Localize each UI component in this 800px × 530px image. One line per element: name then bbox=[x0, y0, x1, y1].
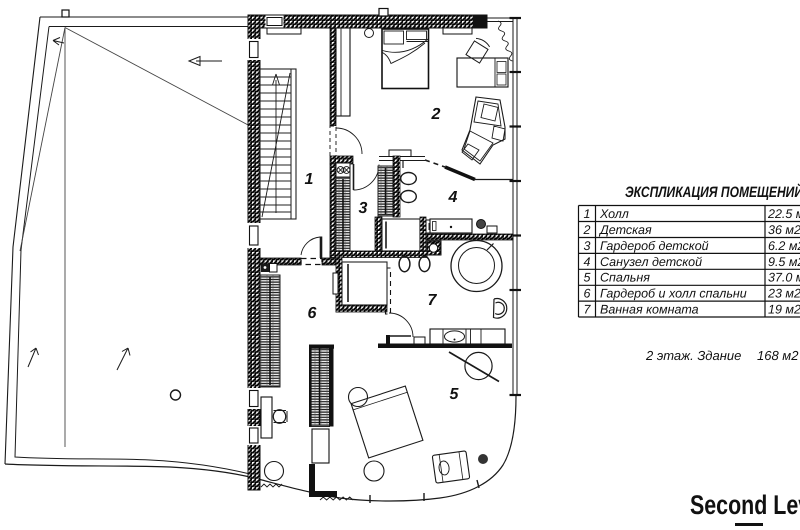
svg-text:ЭКСПЛИКАЦИЯ ПОМЕЩЕНИЙ: ЭКСПЛИКАЦИЯ ПОМЕЩЕНИЙ bbox=[625, 183, 800, 201]
svg-text:Санузел детской: Санузел детской bbox=[600, 255, 702, 269]
svg-text:5: 5 bbox=[450, 386, 460, 403]
svg-text:7: 7 bbox=[428, 292, 438, 309]
svg-text:Second Level: Second Level bbox=[690, 490, 800, 520]
svg-text:3: 3 bbox=[584, 239, 591, 253]
svg-text:5: 5 bbox=[584, 271, 591, 285]
svg-text:9.5 м2: 9.5 м2 bbox=[768, 255, 800, 269]
svg-text:Ванная комната: Ванная комната bbox=[600, 303, 699, 317]
svg-text:Гардероб и холл спальни: Гардероб и холл спальни bbox=[600, 287, 747, 301]
svg-text:Холл: Холл bbox=[599, 207, 629, 221]
svg-text:36 м2: 36 м2 bbox=[768, 223, 800, 237]
svg-text:4: 4 bbox=[584, 255, 591, 269]
svg-text:4: 4 bbox=[448, 189, 458, 206]
svg-text:19 м2: 19 м2 bbox=[768, 303, 800, 317]
svg-text:6: 6 bbox=[308, 305, 317, 322]
svg-text:7: 7 bbox=[584, 303, 592, 317]
svg-text:168 м2: 168 м2 bbox=[757, 348, 799, 363]
svg-text:37.0 м2: 37.0 м2 bbox=[768, 271, 800, 285]
svg-text:23 м2: 23 м2 bbox=[767, 287, 800, 301]
svg-text:6: 6 bbox=[584, 287, 591, 301]
svg-text:Спальня: Спальня bbox=[600, 271, 650, 285]
svg-text:2: 2 bbox=[431, 106, 441, 123]
svg-text:3: 3 bbox=[359, 200, 368, 217]
svg-text:2: 2 bbox=[583, 223, 591, 237]
svg-text:6.2 м2: 6.2 м2 bbox=[768, 239, 800, 253]
svg-text:1: 1 bbox=[584, 207, 591, 221]
svg-text:22.5 м2: 22.5 м2 bbox=[767, 207, 800, 221]
svg-text:2 этаж. Здание: 2 этаж. Здание bbox=[645, 348, 741, 363]
svg-text:Гардероб детской: Гардероб детской bbox=[600, 239, 709, 253]
svg-text:1: 1 bbox=[305, 171, 314, 188]
svg-text:Детская: Детская bbox=[598, 223, 652, 237]
